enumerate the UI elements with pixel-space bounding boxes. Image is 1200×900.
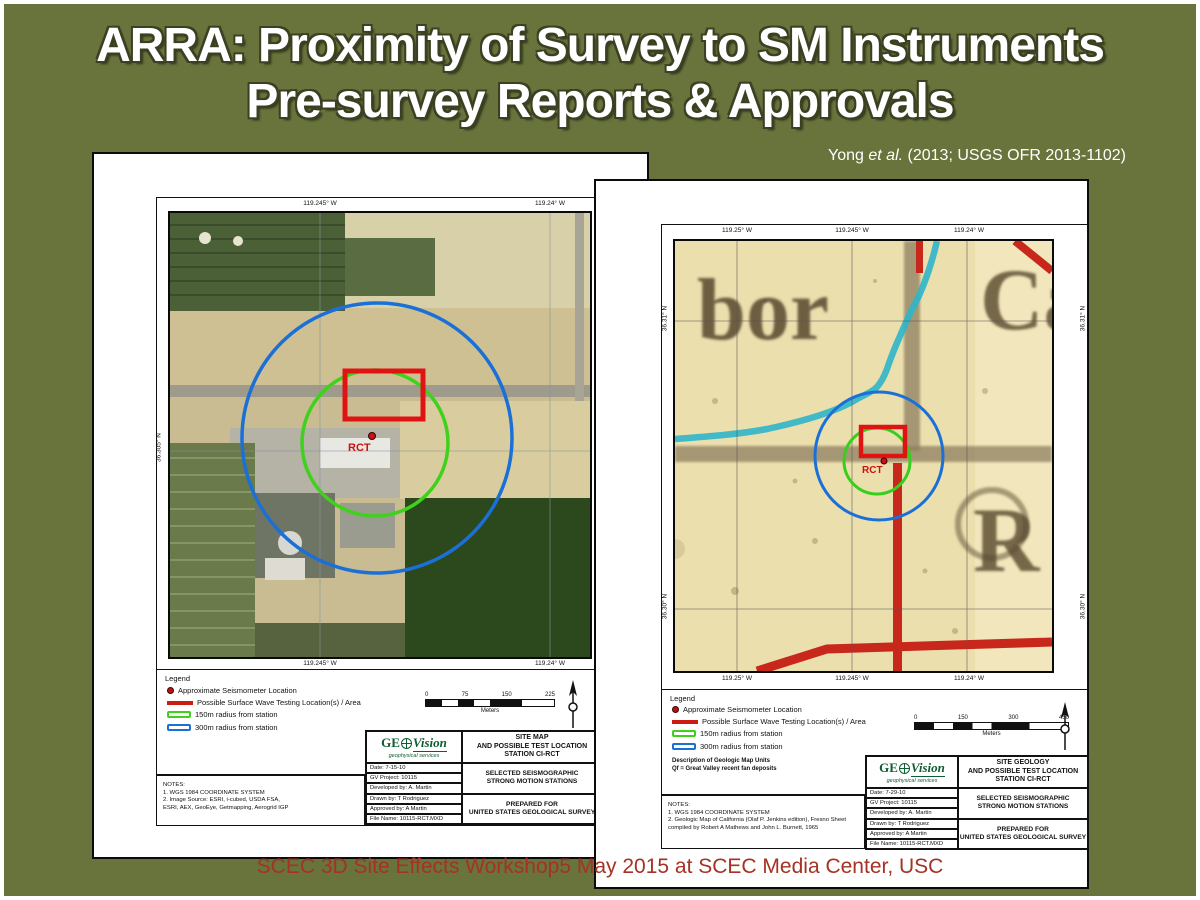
satellite-map-graphic: RCT: [170, 213, 590, 657]
map-sheet-title: SITE GEOLOGY AND POSSIBLE TEST LOCATION …: [958, 756, 1088, 788]
site-geology-page: 119.25° W 119.245° W 119.24° W: [594, 179, 1089, 889]
lon-label-top-left: 119.245° W: [288, 200, 352, 207]
stations-cell: SELECTED SEISMOGRAPHIC STRONG MOTION STA…: [462, 763, 602, 794]
slide-background: ARRA: Proximity of Survey to SM Instrume…: [0, 0, 1200, 900]
notes-line: 1. WGS 1984 COORDINATE SYSTEM: [163, 790, 360, 798]
scale-unit: Meters: [425, 708, 555, 714]
radius-300m-legend-icon: [167, 724, 191, 731]
legend-item-label: Approximate Seismometer Location: [683, 705, 802, 714]
lon-label-bottom-right: 119.24° W: [518, 660, 582, 667]
slide-title-line1: ARRA: Proximity of Survey to SM Instrume…: [4, 18, 1196, 74]
tb-project: GV Project: 10115: [366, 773, 462, 783]
tb-drawn: Drawn by: T Rodriguez: [866, 819, 958, 829]
lat-label-left: 36.305° N: [156, 423, 165, 473]
lat-label-bottom-left: 36.30° N: [662, 582, 671, 632]
map-sheet-title: SITE MAP AND POSSIBLE TEST LOCATION STAT…: [462, 731, 602, 763]
tb-date: Date: 7-29-10: [866, 788, 958, 798]
satellite-map: RCT: [168, 211, 592, 659]
geology-map-graphic: bor Ca R: [675, 241, 1052, 671]
lat-label-top-right: 36.31° N: [1080, 294, 1089, 344]
tb-developed: Developed by: A. Martin: [366, 783, 462, 793]
lon-label-bottom-1: 119.25° W: [705, 675, 769, 682]
scale-tick: 150: [502, 692, 512, 698]
station-label: RCT: [348, 442, 371, 454]
scale-tick: 75: [462, 692, 469, 698]
notes-line: 2. Geologic Map of California (Olaf P. J…: [668, 817, 860, 825]
scale-bar-graphic: [914, 722, 1069, 730]
legend-item-label: 150m radius from station: [195, 710, 278, 719]
tb-date: Date: 7-15-10: [366, 763, 462, 773]
radius-150m-legend-icon: [672, 730, 696, 737]
scale-tick: 0: [425, 692, 428, 698]
slide-title-line2: Pre-survey Reports & Approvals: [4, 74, 1196, 130]
tb-approved: Approved by: A Martin: [866, 829, 958, 839]
notes-line: 2. Image Source: ESRI, i-cubed, USDA FSA…: [163, 797, 360, 805]
notes-line: NOTES:: [668, 802, 860, 810]
globe-icon: [899, 763, 910, 774]
scale-tick: 300: [1008, 715, 1018, 721]
citation-post: (2013; USGS OFR 2013-1102): [903, 147, 1126, 164]
legend-item-label: Possible Surface Wave Testing Location(s…: [197, 698, 361, 707]
geovision-logo: GEVision geophysical services: [866, 756, 958, 788]
scale-tick: 0: [914, 715, 917, 721]
notes-line: compiled by Robert A Mathews and John L.…: [668, 825, 860, 833]
lat-label-bottom-right: 36.30° N: [1080, 582, 1089, 632]
north-arrow-icon: [1057, 702, 1073, 759]
notes-line: 1. WGS 1984 COORDINATE SYSTEM: [668, 810, 860, 818]
notes-line: NOTES:: [163, 782, 360, 790]
legend-item-label: Approximate Seismometer Location: [178, 686, 297, 695]
globe-icon: [401, 738, 412, 749]
map-letter-r: R: [973, 489, 1041, 591]
geovision-logo: GEVision geophysical services: [366, 731, 462, 763]
tb-filename: File Name: 10115-RCT.MXD: [866, 839, 958, 849]
red-road-vertical: [893, 463, 902, 671]
citation-etal: et al.: [868, 147, 903, 164]
legend-item-label: 150m radius from station: [700, 729, 783, 738]
station-label: RCT: [862, 465, 883, 476]
seismometer-marker: [881, 458, 887, 464]
slide-title: ARRA: Proximity of Survey to SM Instrume…: [4, 18, 1196, 130]
scale-bar: 0 75 150 225 Meters: [425, 692, 555, 714]
lon-label-top-1: 119.25° W: [705, 227, 769, 234]
scale-tick: 150: [958, 715, 968, 721]
prepared-for-cell: PREPARED FOR UNITED STATES GEOLOGICAL SU…: [462, 794, 602, 825]
scale-bar: 0 150 300 450 Meters: [914, 715, 1069, 737]
notes-box: NOTES: 1. WGS 1984 COORDINATE SYSTEM 2. …: [661, 795, 865, 849]
prepared-for-cell: PREPARED FOR UNITED STATES GEOLOGICAL SU…: [958, 819, 1088, 850]
testing-area-legend-icon: [167, 701, 193, 705]
map-letters-bor: bor: [697, 262, 829, 359]
tb-approved: Approved by: A Martin: [366, 804, 462, 814]
seismometer-legend-icon: [167, 687, 174, 694]
lon-label-top-3: 119.24° W: [937, 227, 1001, 234]
lon-label-bottom-2: 119.245° W: [820, 675, 884, 682]
footer-text: SCEC 3D Site Effects Workshop5 May 2015 …: [4, 855, 1196, 879]
tb-filename: File Name: 10115-RCT.MXD: [366, 814, 462, 824]
radius-150m-legend-icon: [167, 711, 191, 718]
legend-title: Legend: [165, 674, 190, 683]
title-block: GEVision geophysical services Date: 7-15…: [365, 730, 603, 825]
legend-title: Legend: [670, 694, 695, 703]
north-arrow-icon: [565, 680, 581, 737]
geologic-units-qf: Qf = Great Valley recent fan deposits: [672, 766, 777, 772]
notes-box: NOTES: 1. WGS 1984 COORDINATE SYSTEM 2. …: [156, 775, 365, 826]
lon-label-top-right: 119.24° W: [518, 200, 582, 207]
lon-label-top-2: 119.245° W: [820, 227, 884, 234]
seismometer-legend-icon: [672, 706, 679, 713]
site-map-frame: 119.245° W 119.24° W: [156, 197, 602, 826]
scale-unit: Meters: [914, 731, 1069, 737]
seismometer-marker: [369, 433, 376, 440]
citation: Yong et al. (2013; USGS OFR 2013-1102): [828, 147, 1126, 165]
legend-item-label: Possible Surface Wave Testing Location(s…: [702, 717, 866, 726]
radius-300m-legend-icon: [672, 743, 696, 750]
geology-map: bor Ca R: [673, 239, 1054, 673]
legend-item-label: 300m radius from station: [700, 742, 783, 751]
testing-area-legend-icon: [672, 720, 698, 724]
lon-label-bottom-left: 119.245° W: [288, 660, 352, 667]
tb-developed: Developed by: A. Martin: [866, 808, 958, 818]
tb-project: GV Project: 10115: [866, 798, 958, 808]
title-block: GEVision geophysical services Date: 7-29…: [865, 755, 1089, 850]
legend-item-label: 300m radius from station: [195, 723, 278, 732]
scale-bar-graphic: [425, 699, 555, 707]
geologic-units-desc: Description of Geologic Map Units: [672, 758, 770, 764]
lon-label-bottom-3: 119.24° W: [937, 675, 1001, 682]
scale-tick: 225: [545, 692, 555, 698]
notes-line: ESRI, AEX, GeoEye, Getmapping, Aerogrid …: [163, 805, 360, 813]
lat-label-top-left: 36.31° N: [662, 294, 671, 344]
stations-cell: SELECTED SEISMOGRAPHIC STRONG MOTION STA…: [958, 788, 1088, 819]
site-map-page: 119.245° W 119.24° W: [92, 152, 649, 859]
citation-pre: Yong: [828, 147, 868, 164]
site-geology-frame: 119.25° W 119.245° W 119.24° W: [661, 224, 1088, 849]
tb-drawn: Drawn by: T Rodriguez: [366, 794, 462, 804]
